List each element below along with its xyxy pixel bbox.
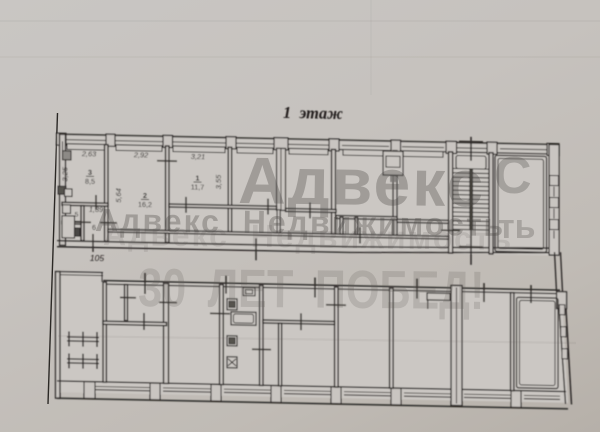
svg-text:3,21: 3,21 (191, 152, 205, 161)
svg-text:С: С (494, 147, 532, 205)
svg-text:105: 105 (90, 253, 104, 263)
svg-text:1 этаж: 1 этаж (283, 103, 343, 123)
svg-text:3,25: 3,25 (61, 166, 70, 181)
svg-text:2: 2 (143, 191, 147, 200)
svg-text:2,92: 2,92 (133, 150, 148, 159)
svg-text:5,64: 5,64 (114, 188, 123, 203)
svg-text:8,5: 8,5 (85, 177, 95, 186)
svg-text:30 ЛЕТ ПОБЕД!: 30 ЛЕТ ПОБЕД! (138, 259, 485, 322)
svg-text:1: 1 (196, 174, 200, 183)
svg-text:5: 5 (75, 212, 79, 219)
svg-text:3: 3 (88, 168, 92, 177)
svg-text:3,55: 3,55 (214, 174, 223, 189)
svg-text:2,63: 2,63 (81, 149, 97, 158)
svg-text:Адвекс Недвижимость: Адвекс Недвижимость (103, 216, 513, 257)
svg-text:11,7: 11,7 (191, 182, 204, 191)
